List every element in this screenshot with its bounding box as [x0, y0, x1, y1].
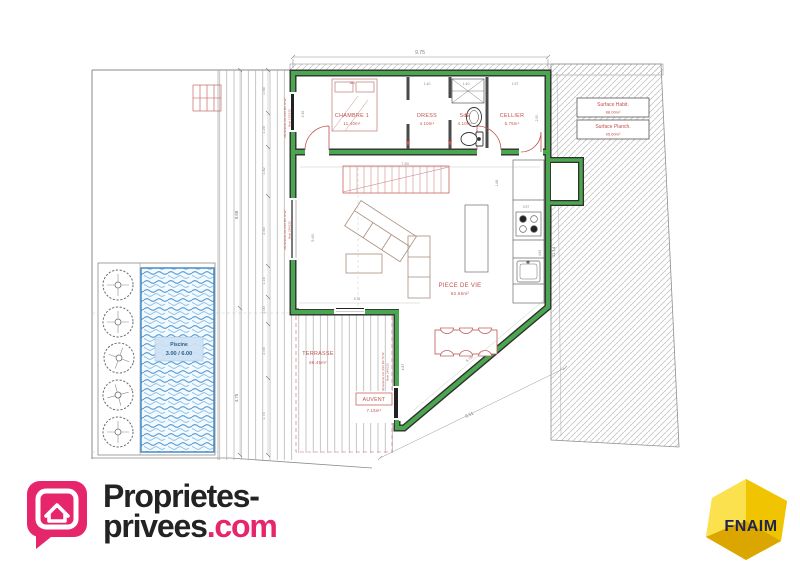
room-label-cellier: CELLIER [500, 113, 525, 119]
surface-plancher-value: 95.60m² [606, 132, 621, 137]
fnaim-cube-icon: FNAIM [698, 476, 794, 564]
dim-cellier-height: 2.50 [535, 115, 539, 122]
annotation-menuiserie: Menuiserie Alu 4/16 BA 70 W [283, 210, 287, 249]
tree-icon [103, 417, 133, 447]
room-label-dress: DRESS [417, 113, 437, 119]
room-area-terrasse: 66.45m² [309, 360, 327, 365]
dim-chain-3: 2.60 [262, 227, 266, 234]
dim-stairs-height: 1.68 [495, 180, 499, 187]
pool-label: Piscine [170, 342, 188, 348]
room-area-sde: 4.10m² [458, 121, 473, 126]
room-area-auvent: 7.15m² [367, 408, 382, 413]
agency-name: Proprietes- privees.com [103, 481, 277, 541]
dim-stairs: 7.83 [401, 162, 408, 166]
dim-bed: 180 [349, 81, 355, 85]
auvent-patch [354, 391, 394, 423]
annotation-baie: Baie 240/215 [386, 363, 390, 381]
room-label-sde: SdE [459, 113, 470, 119]
surface-habitable-label: Surface Habit. [597, 102, 629, 108]
surface-plancher-label: Surface Planch. [595, 124, 630, 130]
dim-chambre-height: 2.92 [301, 111, 305, 118]
annotation-baie: Baie 120/215 [288, 109, 292, 127]
dim-kitchen-height: 4.83 [538, 250, 542, 256]
dim-sde-width: 1.40 [463, 82, 470, 86]
dim-top-width: 9.75 [415, 50, 425, 56]
surface-habitable-value: 88.00m² [606, 110, 621, 115]
dim-cellier-width: 1.97 [512, 82, 519, 86]
room-area-dress: 4.10m² [420, 121, 435, 126]
dining-set [435, 328, 497, 356]
fnaim-logo: FNAIM [698, 476, 794, 566]
dim-parcel-right: 11.14 [551, 246, 556, 257]
room-area-cellier: 5.75m² [505, 121, 520, 126]
fnaim-wordmark: FNAIM [724, 518, 777, 535]
room-label-chambre: CHAMBRE 1 [335, 113, 369, 119]
agency-tld: .com [207, 508, 277, 544]
annotation-menuiserie: Menuiserie Alu 4/16 BA 70 W [381, 352, 385, 391]
dim-chain-6: 2.00 [262, 347, 266, 354]
agency-logo: Proprietes- privees.com [24, 479, 277, 551]
dim-wall-outside: 6.51 [464, 410, 474, 418]
room-label-piece-de-vie: PIECE DE VIE [439, 283, 482, 289]
room-area-piece-de-vie: 62.65m² [451, 291, 469, 296]
dim-living-width: 5.76 [354, 297, 361, 301]
agency-bubble-icon [24, 479, 90, 551]
dim-door-width: 4.87 [401, 364, 405, 371]
tree-icon [103, 307, 133, 337]
dim-deck-total-top: 9.68 [234, 210, 239, 219]
dim-chain-0: 1.66 [262, 87, 266, 94]
dim-living-height: 5.60 [311, 234, 315, 241]
room-label-terrasse: TERRASSE [302, 351, 334, 357]
exterior-steps [193, 85, 221, 111]
dim-chain-1: 1.26 [262, 126, 266, 133]
room-label-auvent: AUVENT [363, 397, 386, 403]
dim-chain-5: 1.00 [262, 306, 266, 313]
island-counter [465, 205, 488, 272]
floor-plan-page: 11.14 1.66 1.26 1.82 2.60 1.16 1.00 2.00… [0, 0, 800, 566]
room-area-chambre: 11.40m² [343, 121, 360, 126]
annotation-baie: Baie 240/215 [288, 221, 292, 239]
agency-line2: privees [103, 508, 207, 544]
dim-chain-2: 1.82 [262, 167, 266, 174]
dim-kitchen-width: 0.97 [523, 205, 530, 209]
pool-size: 3.00 / 6.00 [166, 351, 192, 357]
dim-chain-4: 1.16 [262, 277, 266, 284]
dim-chain-7: 1.70 [262, 412, 266, 419]
pool: Piscine 3.00 / 6.00 [141, 268, 214, 452]
toilet-icon [461, 132, 483, 146]
dim-dress-width: 1.40 [424, 82, 431, 86]
tree-icon [103, 270, 133, 300]
annex-floor [551, 163, 578, 200]
annotation-menuiserie: Menuiserie Alu 4/16 BA 70 W [283, 98, 287, 137]
dim-deck-total-bottom: 4.75 [234, 393, 239, 402]
